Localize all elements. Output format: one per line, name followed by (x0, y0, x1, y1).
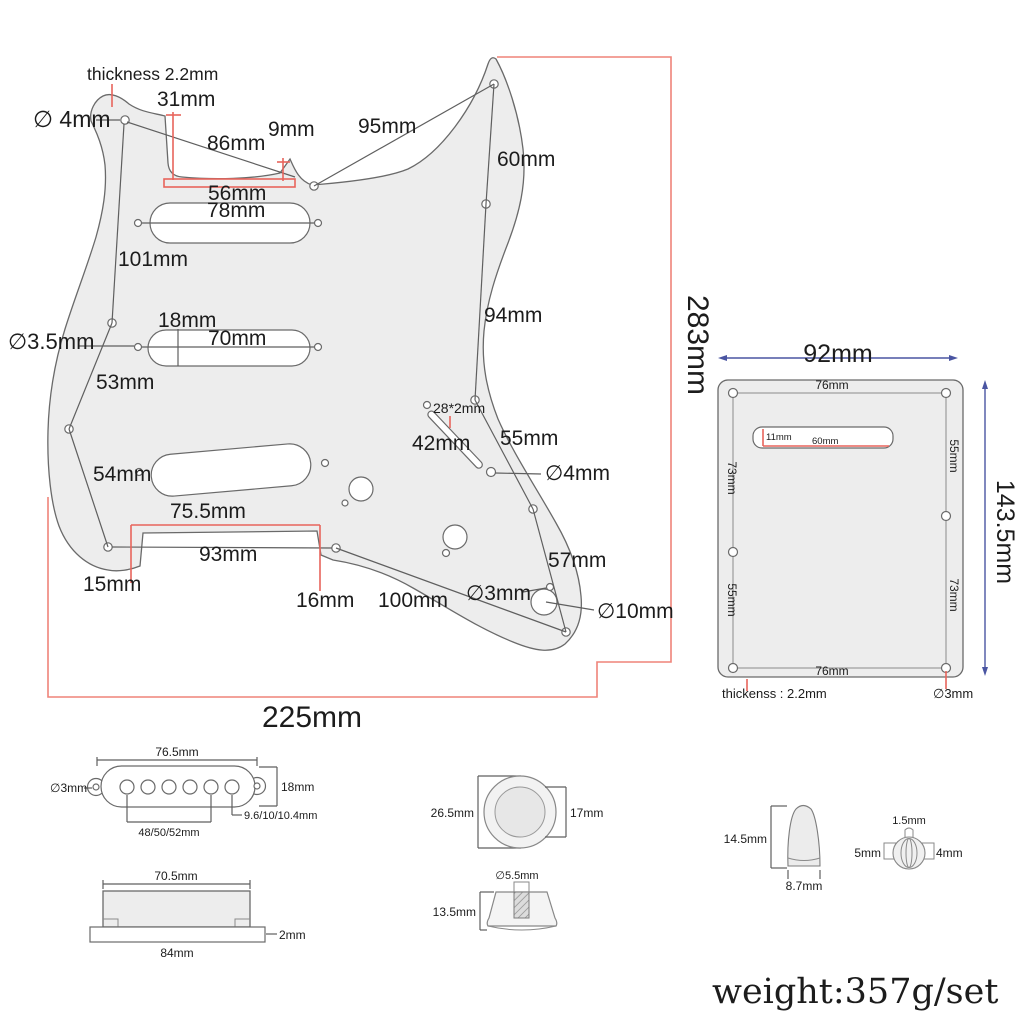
dimension-drawing: thickness 2.2mm ∅ 4mm 31mm 9mm 95mm 86mm… (0, 0, 1024, 1024)
knob-inner (495, 787, 545, 837)
label-bp-76mm-bottom: 76mm (815, 664, 848, 678)
label-pu-76-5mm: 76.5mm (155, 745, 198, 759)
label-70mm: 70mm (208, 327, 266, 350)
label-hole-10mm: ∅10mm (597, 600, 674, 623)
label-tip-14-5mm: 14.5mm (724, 832, 767, 846)
label-28x2mm: 28*2mm (433, 400, 485, 416)
switch-tip-shape (788, 806, 820, 867)
label-bp-92mm: 92mm (803, 340, 872, 368)
diagram-page: thickness 2.2mm ∅ 4mm 31mm 9mm 95mm 86mm… (0, 0, 1024, 1024)
backplate-outline (718, 380, 963, 677)
pickup-baseplate (90, 927, 265, 942)
pickup-bobbin (103, 891, 250, 927)
label-pus-84mm: 84mm (160, 946, 193, 960)
label-pu-span: 48/50/52mm (138, 827, 199, 839)
label-9mm: 9mm (268, 118, 315, 141)
label-bp-143-5mm: 143.5mm (991, 480, 1019, 584)
label-31mm: 31mm (157, 88, 215, 111)
label-bp-hole-3mm: ∅3mm (933, 686, 973, 701)
label-knob-17mm: 17mm (570, 806, 603, 820)
label-60mm: 60mm (497, 148, 555, 171)
label-94mm: 94mm (484, 304, 542, 327)
barrel-tip-view: 1.5mm 5mm 4mm (854, 815, 962, 869)
label-55mm: 55mm (500, 427, 558, 450)
label-hole-4mm-top: ∅ 4mm (33, 106, 111, 132)
label-75-5mm: 75.5mm (170, 500, 246, 523)
label-thickness: thickness 2.2mm (87, 64, 218, 84)
label-53mm: 53mm (96, 371, 154, 394)
label-bp-76mm-top: 76mm (815, 378, 848, 392)
hole-10mm (531, 589, 557, 615)
label-barrel-4mm: 4mm (936, 846, 963, 860)
label-bp-11mm: 11mm (766, 432, 792, 443)
label-16mm: 16mm (296, 589, 354, 612)
hole-3mm (547, 584, 554, 591)
barrel-body (893, 837, 925, 869)
label-42mm: 42mm (412, 432, 470, 455)
label-bp-55mm-left: 55mm (725, 583, 739, 616)
label-86mm: 86mm (207, 132, 265, 155)
label-57mm: 57mm (548, 549, 606, 572)
label-pu-pole-spacing: 9.6/10/10.4mm (244, 810, 317, 822)
label-93mm: 93mm (199, 543, 257, 566)
label-barrel-5mm: 5mm (854, 846, 881, 860)
label-bp-60mm: 60mm (812, 436, 838, 447)
knob-side-view: ∅5.5mm 13.5mm (433, 870, 557, 930)
knob-top-view: 26.5mm 17mm (431, 776, 604, 848)
label-height-283: 283mm (681, 295, 714, 395)
label-pu-18mm: 18mm (281, 780, 314, 794)
label-15mm: 15mm (83, 573, 141, 596)
label-101mm: 101mm (118, 248, 188, 271)
label-bp-73mm-right: 73mm (947, 578, 961, 611)
label-bp-thickness: thickenss : 2.2mm (722, 686, 827, 701)
pickup-top-view: 76.5mm ∅3mm 18mm 9.6/10/10.4mm 48/50/52m… (50, 745, 317, 839)
label-95mm: 95mm (358, 115, 416, 138)
label-78mm: 78mm (207, 199, 265, 222)
label-bp-73mm-left: 73mm (725, 461, 739, 494)
label-width-225: 225mm (262, 701, 362, 734)
label-pus-70-5mm: 70.5mm (154, 869, 197, 883)
switch-tip-view: 14.5mm 8.7mm (724, 806, 823, 894)
label-knob-5-5mm: ∅5.5mm (495, 870, 538, 882)
pickguard-drawing: thickness 2.2mm ∅ 4mm 31mm 9mm 95mm 86mm… (8, 58, 714, 734)
weight-note: weight:357g/set (712, 972, 998, 1012)
label-knob-13-5mm: 13.5mm (433, 905, 476, 919)
label-hole-3-5mm: ∅3.5mm (8, 329, 94, 354)
label-bp-55mm-right: 55mm (947, 439, 961, 472)
pickup-side-view: 70.5mm 2mm 84mm (90, 869, 306, 960)
label-hole-3mm: ∅3mm (466, 582, 531, 605)
pickguard-outline (48, 58, 582, 650)
label-knob-26-5mm: 26.5mm (431, 806, 474, 820)
label-54mm: 54mm (93, 463, 151, 486)
backplate-drawing: 92mm 76mm 76mm 11mm 60mm 73mm 55mm 55mm … (718, 340, 1019, 701)
label-hole-4mm-mid: ∅4mm (545, 462, 610, 485)
label-pu-hole-3mm: ∅3mm (50, 781, 87, 795)
label-tip-8-7mm: 8.7mm (786, 879, 823, 893)
label-barrel-1-5mm: 1.5mm (892, 815, 926, 827)
label-100mm: 100mm (378, 589, 448, 612)
knob-shaft-hatch (514, 892, 529, 918)
label-pus-2mm: 2mm (279, 928, 306, 942)
